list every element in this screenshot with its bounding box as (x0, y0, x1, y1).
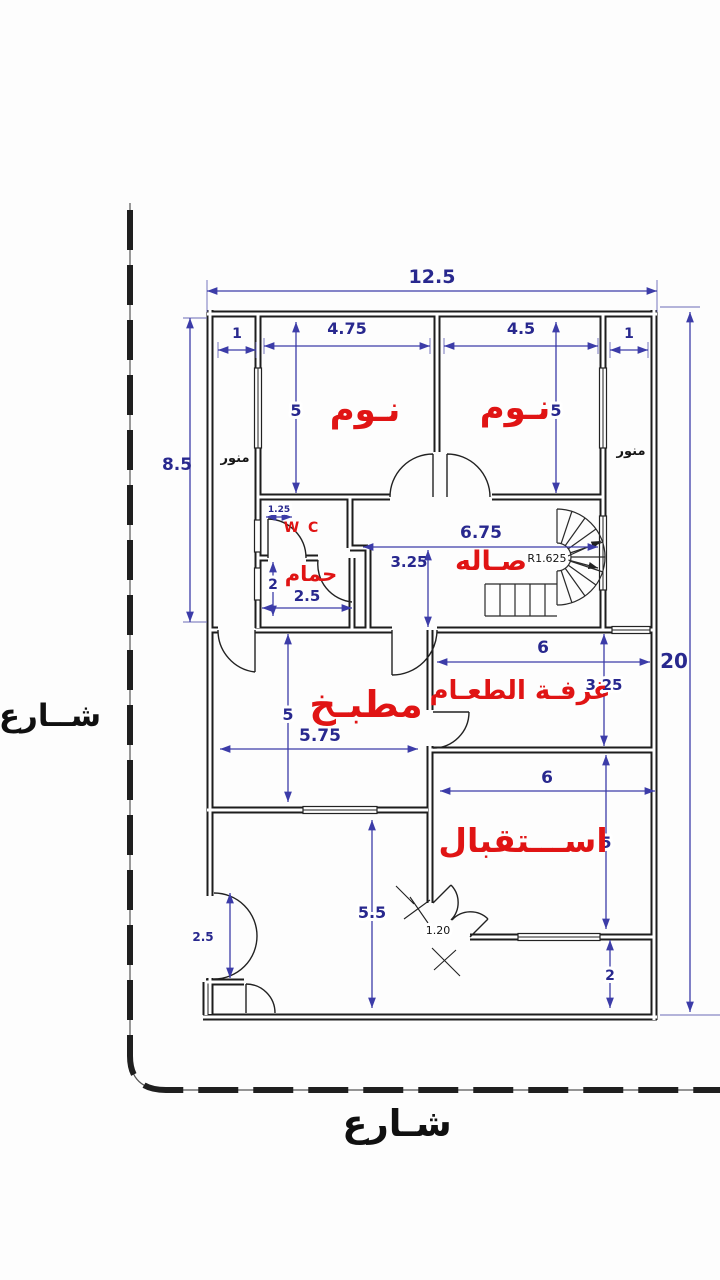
dim-label-total-width: 12.5 (409, 266, 456, 288)
floor-plan-drawing: 12.5 20 8.5 1 4.75 4.5 1 5 5 1.25 2 2.5 … (0, 0, 720, 1280)
room-label-kitchen: مطبـخ (309, 683, 422, 726)
stair-radius-leader-2 (568, 560, 598, 568)
street-boundary-dashes (130, 210, 720, 1090)
dim-label-wc-width: 1.25 (268, 505, 290, 515)
room-label-bedroom-right: نـوم (480, 388, 551, 428)
street-label-bottom: شـارع (342, 1102, 452, 1145)
walls (203, 310, 657, 1020)
dim-label-dining-width: 6 (537, 638, 549, 658)
dim-label-bedroom-left-height: 5 (290, 401, 301, 420)
label-lightwell-right: منور (616, 444, 646, 459)
room-label-dining: غرفـة الطعـام (429, 676, 610, 706)
street-label-left: شــارع (0, 698, 101, 734)
window (255, 568, 261, 600)
dim-label-corridor-height: 5.5 (358, 903, 386, 922)
extension-lines (183, 280, 720, 1015)
room-label-reception: اســـتقبال (438, 821, 607, 860)
stair-radius-leader (568, 541, 601, 556)
floor-plan-page: 12.5 20 8.5 1 4.75 4.5 1 5 5 1.25 2 2.5 … (0, 0, 720, 1280)
dim-label-hall-height: 3.25 (390, 553, 427, 571)
label-lightwell-left: منور (220, 451, 250, 466)
dim-label-bedroom-left-width: 4.75 (327, 319, 366, 338)
room-label-wc: W C (284, 520, 321, 536)
dim-label-bathroom-height: 2 (268, 577, 278, 593)
dim-label-bottom-strip: 2 (605, 968, 615, 984)
dim-label-bedroom-right-width: 4.5 (507, 319, 535, 338)
dim-label-upper-left-height: 8.5 (162, 455, 192, 475)
dim-label-hall-width: 6.75 (460, 523, 502, 543)
room-label-bathroom: حمام (285, 562, 338, 586)
dim-label-side-entrance: 2.5 (192, 930, 213, 944)
dim-label-lightwell-right: 1 (624, 326, 634, 342)
dim-label-lightwell-left: 1 (232, 326, 242, 342)
dim-label-kitchen-height: 5 (282, 705, 293, 724)
window (255, 520, 261, 552)
dim-label-bathroom-width: 2.5 (294, 587, 321, 605)
dim-label-total-height: 20 (660, 649, 688, 673)
room-label-hall: صـاله (455, 546, 527, 577)
dim-label-bedroom-right-height: 5 (550, 401, 561, 420)
dim-label-kitchen-width: 5.75 (299, 726, 341, 746)
dimension-labels: 12.5 20 8.5 1 4.75 4.5 1 5 5 1.25 2 2.5 … (162, 266, 688, 984)
room-label-bedroom-left: نـوم (330, 390, 401, 430)
dim-label-entrance-width: 1.20 (426, 924, 451, 937)
stair-radius-label: R1.625 (527, 552, 566, 565)
dim-label-reception-width: 6 (541, 768, 553, 788)
